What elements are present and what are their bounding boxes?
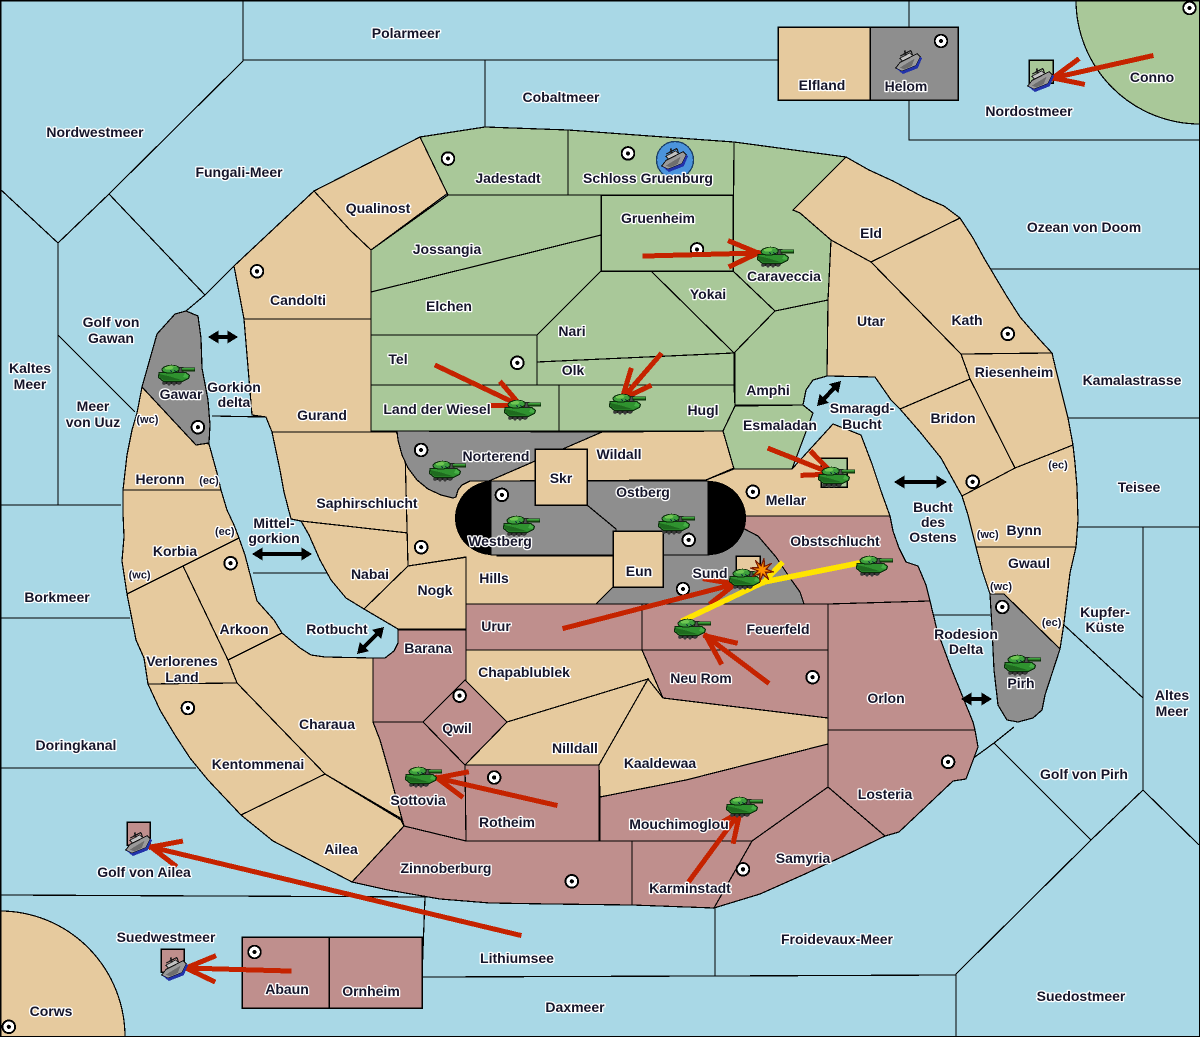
svg-text:Nordostmeer: Nordostmeer bbox=[985, 103, 1073, 119]
svg-text:Helom: Helom bbox=[885, 78, 928, 94]
svg-text:Nabai: Nabai bbox=[351, 566, 389, 582]
svg-text:Gorkion: Gorkion bbox=[207, 379, 261, 395]
svg-text:Elfland: Elfland bbox=[799, 77, 846, 93]
svg-text:(ec): (ec) bbox=[1042, 617, 1062, 629]
svg-text:Bynn: Bynn bbox=[1007, 522, 1042, 538]
svg-text:Mouchimoglou: Mouchimoglou bbox=[629, 816, 729, 832]
svg-text:Ostberg: Ostberg bbox=[616, 484, 670, 500]
svg-text:Bridon: Bridon bbox=[930, 410, 975, 426]
svg-text:von Uuz: von Uuz bbox=[66, 414, 120, 430]
svg-text:Olk: Olk bbox=[562, 362, 585, 378]
svg-text:Teisee: Teisee bbox=[1118, 479, 1161, 495]
svg-text:Barana: Barana bbox=[404, 640, 452, 656]
svg-text:Mellar: Mellar bbox=[766, 492, 807, 508]
svg-text:Orlon: Orlon bbox=[867, 690, 904, 706]
svg-text:Küste: Küste bbox=[1086, 619, 1125, 635]
svg-text:Qualinost: Qualinost bbox=[346, 200, 411, 216]
svg-text:Froidevaux-Meer: Froidevaux-Meer bbox=[781, 931, 894, 947]
svg-text:Obstschlucht: Obstschlucht bbox=[790, 533, 880, 549]
svg-text:Neu Rom: Neu Rom bbox=[670, 670, 731, 686]
svg-text:Yokai: Yokai bbox=[690, 286, 726, 302]
svg-text:Gawan: Gawan bbox=[88, 330, 134, 346]
svg-text:Ostens: Ostens bbox=[909, 529, 957, 545]
svg-text:Sottovia: Sottovia bbox=[390, 792, 445, 808]
svg-text:Tel: Tel bbox=[388, 351, 407, 367]
svg-text:Nilldall: Nilldall bbox=[552, 740, 598, 756]
svg-text:Land: Land bbox=[165, 669, 198, 685]
svg-text:Westberg: Westberg bbox=[468, 533, 532, 549]
svg-text:gorkion: gorkion bbox=[248, 530, 299, 546]
svg-text:Wildall: Wildall bbox=[597, 446, 642, 462]
svg-text:Kupfer-: Kupfer- bbox=[1080, 604, 1130, 620]
svg-text:(ec): (ec) bbox=[199, 475, 219, 487]
svg-text:Kamalastrasse: Kamalastrasse bbox=[1083, 372, 1182, 388]
svg-text:Elchen: Elchen bbox=[426, 298, 472, 314]
svg-text:Urur: Urur bbox=[481, 618, 511, 634]
svg-text:Eun: Eun bbox=[626, 563, 652, 579]
svg-text:Kath: Kath bbox=[951, 312, 982, 328]
svg-text:Suedostmeer: Suedostmeer bbox=[1037, 988, 1126, 1004]
svg-text:Golf von Ailea: Golf von Ailea bbox=[97, 864, 191, 880]
svg-text:Rodesion: Rodesion bbox=[934, 626, 998, 642]
svg-text:Chapablublek: Chapablublek bbox=[478, 664, 570, 680]
svg-text:Land der Wiesel: Land der Wiesel bbox=[383, 401, 490, 417]
svg-text:Feuerfeld: Feuerfeld bbox=[746, 621, 809, 637]
svg-text:Ornheim: Ornheim bbox=[342, 983, 400, 999]
svg-text:Candolti: Candolti bbox=[270, 292, 326, 308]
svg-text:Jadestadt: Jadestadt bbox=[475, 170, 541, 186]
svg-text:Esmaladan: Esmaladan bbox=[743, 417, 817, 433]
svg-text:Qwil: Qwil bbox=[442, 720, 472, 736]
svg-text:Nari: Nari bbox=[558, 323, 585, 339]
svg-text:(ec): (ec) bbox=[1048, 460, 1068, 472]
svg-text:Kaaldewaa: Kaaldewaa bbox=[624, 755, 697, 771]
svg-text:Corws: Corws bbox=[30, 1003, 73, 1019]
svg-text:Meer: Meer bbox=[77, 398, 110, 414]
svg-text:Norterend: Norterend bbox=[463, 448, 530, 464]
svg-text:Bucht: Bucht bbox=[913, 499, 953, 515]
svg-text:Smaragd-: Smaragd- bbox=[830, 400, 895, 416]
svg-text:Riesenheim: Riesenheim bbox=[975, 364, 1054, 380]
svg-text:Suedwestmeer: Suedwestmeer bbox=[117, 929, 216, 945]
svg-text:Doringkanal: Doringkanal bbox=[36, 737, 117, 753]
svg-text:Utar: Utar bbox=[857, 313, 886, 329]
svg-text:Zinnoberburg: Zinnoberburg bbox=[401, 860, 492, 876]
svg-text:Jossangia: Jossangia bbox=[413, 241, 482, 257]
svg-text:Kentommenai: Kentommenai bbox=[212, 756, 305, 772]
svg-text:Pirh: Pirh bbox=[1007, 675, 1034, 691]
svg-text:Saphirschlucht: Saphirschlucht bbox=[316, 495, 417, 511]
svg-text:Hills: Hills bbox=[479, 570, 509, 586]
svg-text:Gawar: Gawar bbox=[160, 386, 203, 402]
svg-text:Ailea: Ailea bbox=[324, 841, 358, 857]
svg-text:Meer: Meer bbox=[1156, 703, 1189, 719]
svg-text:Golf von Pirh: Golf von Pirh bbox=[1040, 766, 1128, 782]
svg-text:Korbia: Korbia bbox=[153, 543, 198, 559]
svg-text:Karminstadt: Karminstadt bbox=[649, 880, 731, 896]
svg-text:Gurand: Gurand bbox=[297, 407, 347, 423]
svg-text:Abaun: Abaun bbox=[265, 981, 309, 997]
svg-text:Gwaul: Gwaul bbox=[1008, 555, 1050, 571]
svg-text:(wc): (wc) bbox=[977, 529, 999, 541]
svg-text:Heronn: Heronn bbox=[136, 471, 185, 487]
svg-text:Lithiumsee: Lithiumsee bbox=[480, 950, 554, 966]
svg-text:Caraveccia: Caraveccia bbox=[747, 268, 821, 284]
svg-text:Losteria: Losteria bbox=[858, 786, 913, 802]
svg-text:Charaua: Charaua bbox=[299, 716, 355, 732]
svg-text:Polarmeer: Polarmeer bbox=[372, 25, 441, 41]
svg-text:(wc): (wc) bbox=[136, 414, 158, 426]
svg-text:Sund: Sund bbox=[693, 565, 728, 581]
svg-text:Rotheim: Rotheim bbox=[479, 814, 535, 830]
svg-text:Bucht: Bucht bbox=[842, 416, 882, 432]
svg-text:Altes: Altes bbox=[1155, 687, 1189, 703]
svg-text:Borkmeer: Borkmeer bbox=[24, 589, 90, 605]
svg-text:Hugl: Hugl bbox=[687, 402, 718, 418]
svg-text:Golf von: Golf von bbox=[83, 314, 140, 330]
svg-text:Fungali-Meer: Fungali-Meer bbox=[195, 164, 283, 180]
svg-text:Daxmeer: Daxmeer bbox=[545, 999, 605, 1015]
svg-text:(wc): (wc) bbox=[129, 570, 151, 582]
svg-text:Ozean von Doom: Ozean von Doom bbox=[1027, 219, 1141, 235]
svg-text:Schloss Gruenburg: Schloss Gruenburg bbox=[583, 170, 713, 186]
svg-text:(wc): (wc) bbox=[990, 581, 1012, 593]
svg-text:delta: delta bbox=[218, 394, 251, 410]
svg-text:Amphi: Amphi bbox=[746, 382, 790, 398]
svg-text:Delta: Delta bbox=[949, 641, 983, 657]
svg-text:Rotbucht: Rotbucht bbox=[306, 621, 368, 637]
svg-text:Mittel-: Mittel- bbox=[253, 515, 295, 531]
svg-text:Gruenheim: Gruenheim bbox=[621, 210, 695, 226]
svg-text:Skr: Skr bbox=[550, 470, 573, 486]
svg-text:Conno: Conno bbox=[1130, 69, 1174, 85]
svg-text:Meer: Meer bbox=[14, 376, 47, 392]
svg-text:Cobaltmeer: Cobaltmeer bbox=[522, 89, 600, 105]
svg-text:Samyria: Samyria bbox=[776, 850, 831, 866]
svg-text:Eld: Eld bbox=[860, 225, 882, 241]
svg-text:des: des bbox=[921, 514, 945, 530]
svg-text:Nogk: Nogk bbox=[418, 582, 453, 598]
svg-text:Verlorenes: Verlorenes bbox=[146, 653, 218, 669]
svg-text:Arkoon: Arkoon bbox=[220, 621, 269, 637]
svg-text:Kaltes: Kaltes bbox=[9, 360, 51, 376]
svg-text:(ec): (ec) bbox=[215, 526, 235, 538]
svg-text:Nordwestmeer: Nordwestmeer bbox=[46, 124, 144, 140]
